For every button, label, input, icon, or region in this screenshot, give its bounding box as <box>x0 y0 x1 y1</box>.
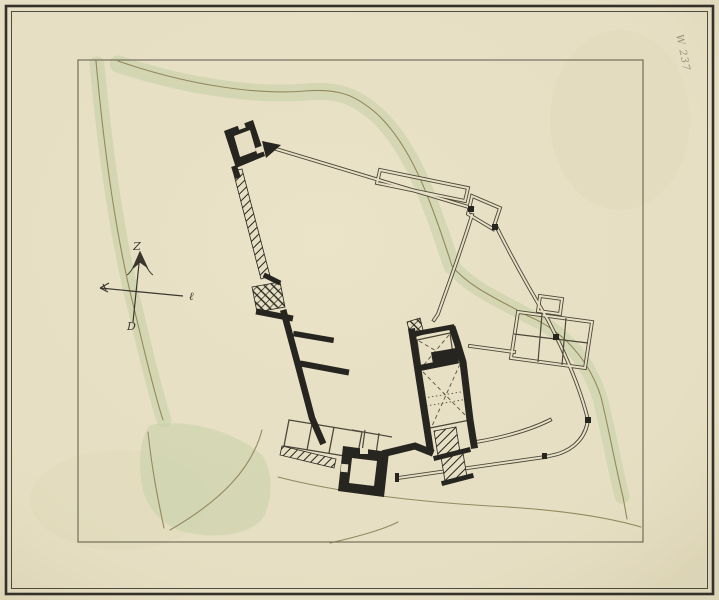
compass-south-label: D <box>126 320 136 333</box>
castle-plan-drawing: Z ℓ D <box>0 0 719 600</box>
gate-opening-north <box>360 448 368 454</box>
west-bastion <box>252 282 285 312</box>
compass-north-label: Z <box>132 240 141 253</box>
gate-tower <box>338 446 389 497</box>
compass-east-label: ℓ <box>189 290 194 303</box>
paper-background <box>0 0 719 600</box>
gate-opening-west <box>341 464 349 473</box>
plan-sheet: Z ℓ D W 237 <box>0 0 719 600</box>
